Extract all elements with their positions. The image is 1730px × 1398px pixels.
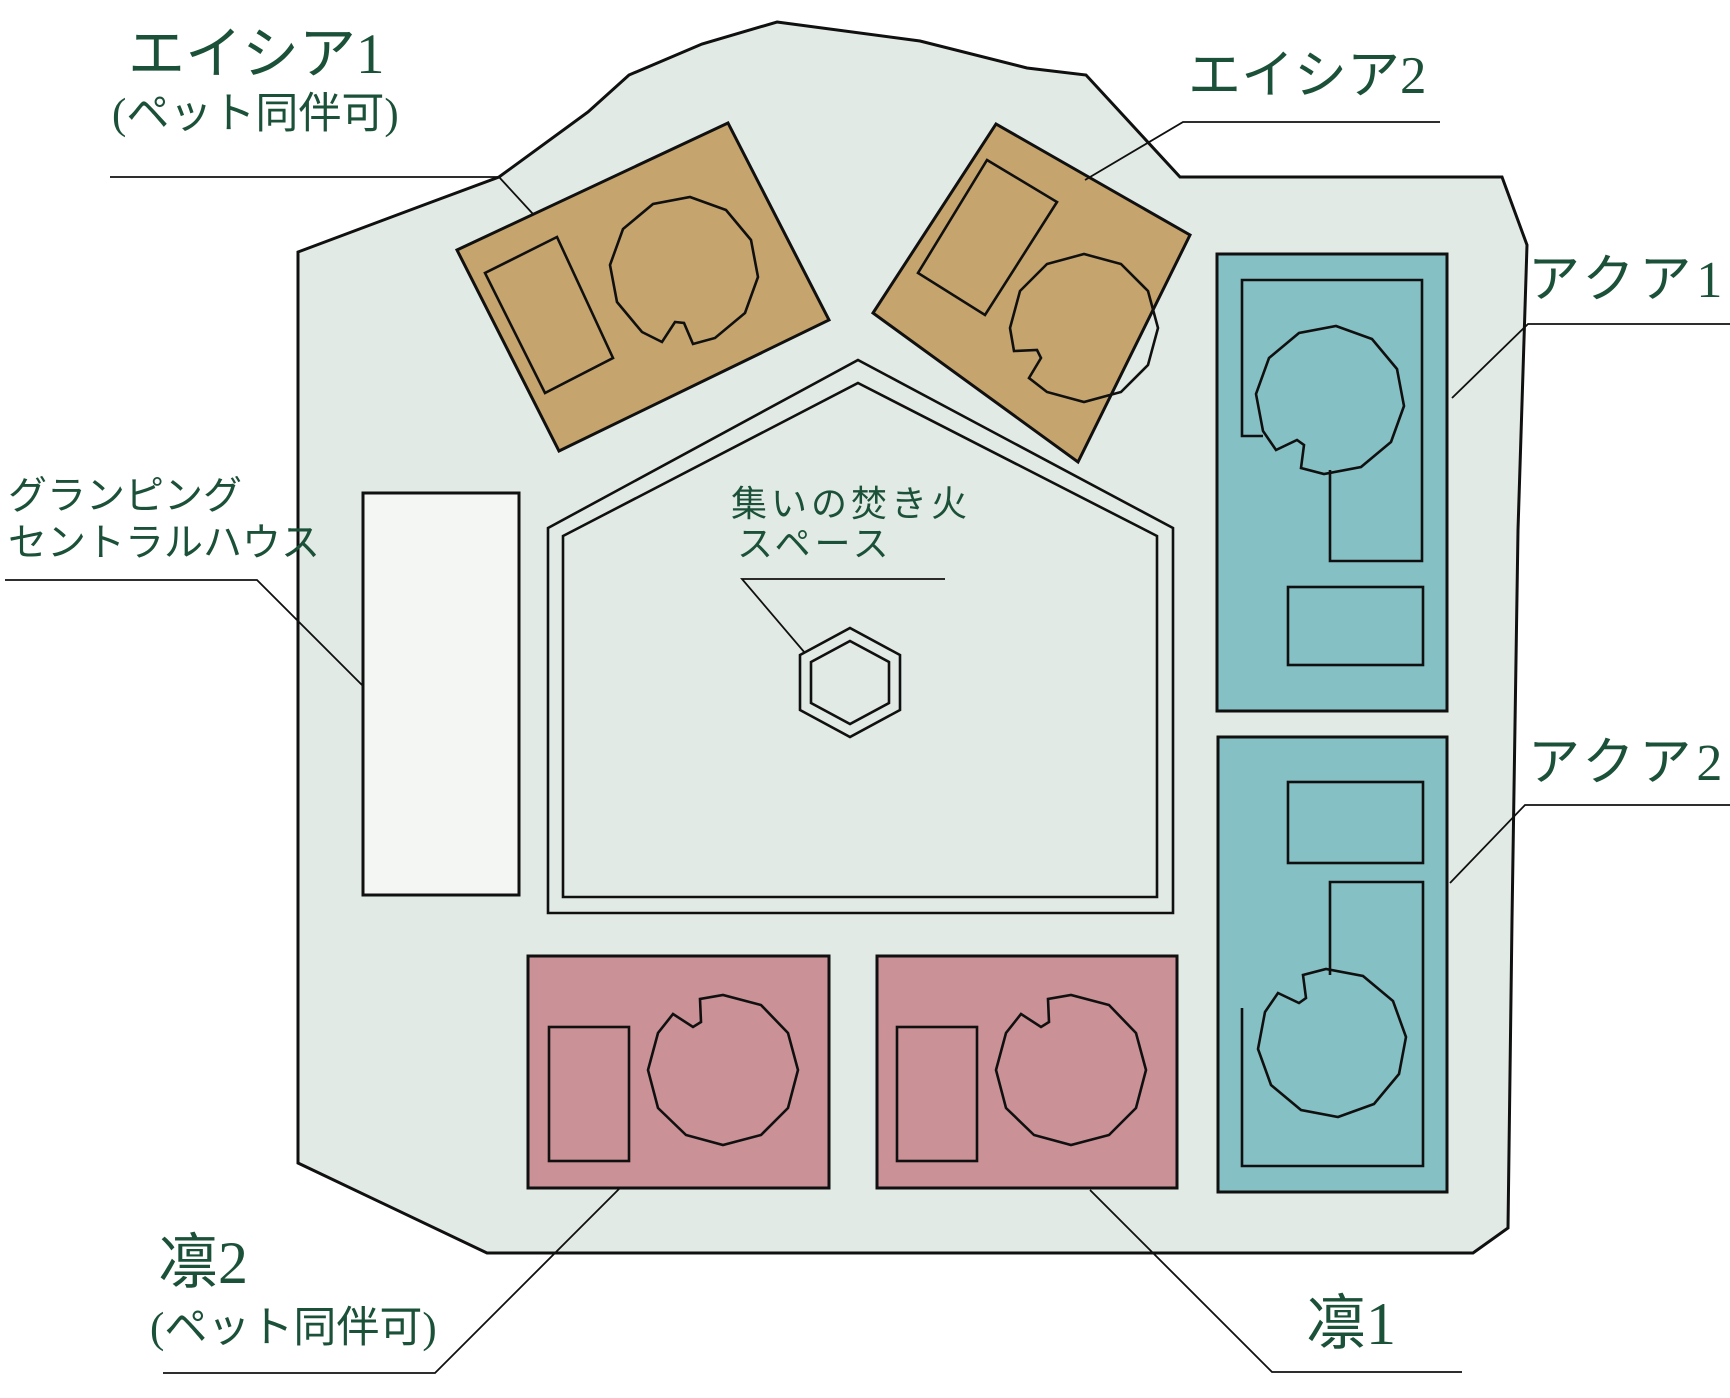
aqua1-ground — [1217, 254, 1447, 711]
central-house — [363, 493, 519, 895]
aqua2-ground — [1218, 737, 1447, 1192]
fire-space-label-line1: 集いの焚き火 — [731, 484, 971, 524]
aqua2-area — [1218, 737, 1447, 1192]
rin2-ground — [528, 956, 829, 1188]
acacia2-label: エイシア2 — [1188, 47, 1427, 105]
rin1-ground — [877, 956, 1177, 1188]
central-house-label-line2: セントラルハウス — [8, 522, 320, 565]
aqua1-area — [1217, 254, 1447, 711]
rin2-area — [528, 956, 829, 1188]
fire-space-label-line2: スペース — [737, 524, 893, 564]
aqua1-label: アクア1 — [1528, 252, 1727, 309]
site-map-canvas: エイシア1 (ペット同伴可) エイシア2 アクア1 アクア2 グランピング セン… — [0, 0, 1730, 1398]
acacia1-label: エイシア1 — [128, 23, 385, 86]
central-house-label-line1: グランピング — [8, 475, 242, 518]
glamping-site-map: エイシア1 (ペット同伴可) エイシア2 アクア1 アクア2 グランピング セン… — [0, 0, 1730, 1398]
rin2-note: (ペット同伴可) — [150, 1305, 437, 1352]
aqua2-label: アクア2 — [1528, 735, 1727, 792]
rin1-label: 凛1 — [1306, 1291, 1396, 1357]
rin1-area — [877, 956, 1177, 1188]
acacia1-note: (ペット同伴可) — [112, 91, 399, 138]
rin2-label: 凛2 — [158, 1230, 248, 1296]
